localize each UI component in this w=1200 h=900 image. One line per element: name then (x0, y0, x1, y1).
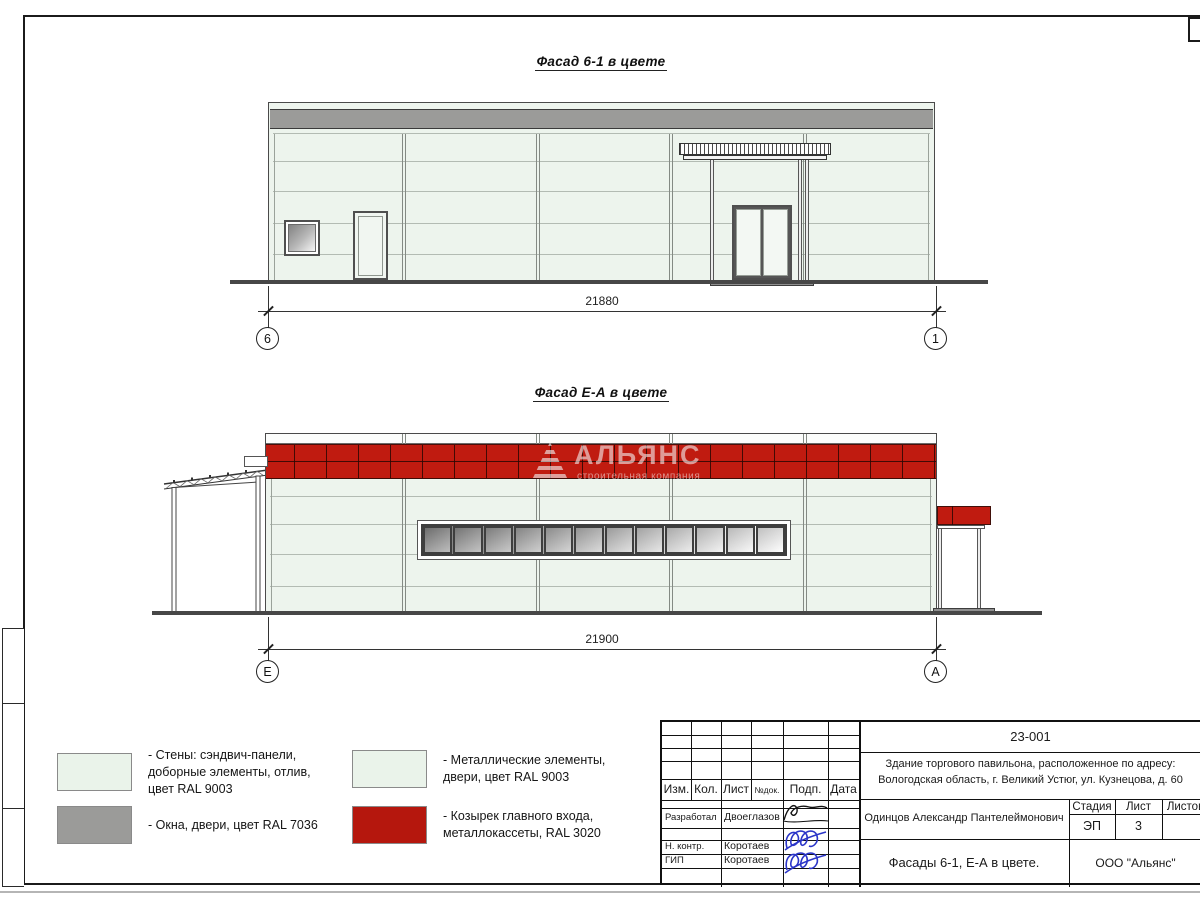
facade2-ribbon-window (417, 520, 791, 560)
signature-blue-stamps (779, 826, 833, 880)
company-name: ООО "Альянс" (1069, 856, 1200, 870)
facade1-window (284, 220, 320, 256)
right-canopy-post (977, 529, 981, 610)
signature-developer (782, 800, 830, 826)
axis-bubble-1: 1 (924, 327, 947, 350)
window-pane (514, 526, 543, 554)
extension-line (268, 617, 269, 661)
frame-corner-box (1188, 17, 1200, 42)
panel-joint (402, 134, 406, 280)
col-data: Дата (828, 782, 859, 796)
panel-joint (803, 479, 807, 612)
col-podp: Подп. (783, 782, 828, 796)
panel-joint (536, 134, 540, 280)
facade2-right-red-fascia (937, 506, 991, 525)
axis-bubble-E: Е (256, 660, 279, 683)
window-pane (695, 526, 724, 554)
col-ndok: №док. (751, 785, 783, 795)
name-gip: Коротаев (724, 854, 769, 866)
facade2-side-canopy (162, 462, 272, 614)
door-leaf (736, 209, 761, 276)
facade1-dimension-value: 21880 (537, 294, 667, 308)
window-pane (453, 526, 482, 554)
dimension-line (258, 649, 946, 650)
window-frame (421, 524, 787, 556)
legend-label-windows: - Окна, двери, цвет RAL 7036 (148, 817, 358, 834)
window-pane (635, 526, 664, 554)
panel-line (273, 133, 930, 134)
client-name: Одинцов Александр Пантелеймонович (859, 812, 1069, 824)
frame-margin-box-3 (2, 808, 24, 887)
extension-line (936, 286, 937, 328)
legend-label-walls: - Стены: сэндвич-панели, доборные элемен… (148, 747, 358, 798)
facade1-parapet-band (270, 109, 933, 129)
stage-label: Стадия (1069, 801, 1115, 813)
sheet-bottom-edge (0, 891, 1200, 893)
panel-joint (803, 434, 807, 444)
frame-margin-box-1 (2, 628, 24, 705)
facade1-entrance-canopy (679, 143, 831, 155)
facade2-roof-edge (266, 434, 936, 444)
facade1-single-door (353, 211, 388, 280)
corner-line (274, 134, 275, 280)
facade2-left-protrusion (244, 456, 268, 467)
door-leaf (358, 216, 383, 276)
sheet-value: 3 (1115, 819, 1162, 833)
panel-joint (402, 479, 406, 612)
panel-line (273, 191, 930, 192)
facade1-building (268, 102, 935, 281)
sheet-label: Лист (1115, 801, 1162, 813)
doc-number: 23-001 (859, 729, 1200, 744)
window-pane (484, 526, 513, 554)
legend-swatch-walls (57, 753, 132, 791)
role-gip: ГИП (665, 855, 684, 866)
corner-line (930, 479, 931, 612)
window-glass (288, 224, 316, 252)
name-developer: Двоеглазов (724, 811, 780, 823)
right-canopy-post (938, 529, 942, 610)
sheets-label: Листов (1162, 801, 1200, 813)
cassette-joint (952, 506, 953, 525)
door-leaf (763, 209, 788, 276)
frame-top (23, 15, 1200, 17)
stage-value: ЭП (1069, 819, 1115, 833)
panel-joint (402, 434, 406, 444)
canopy-post (798, 160, 802, 280)
canopy-post (805, 160, 809, 280)
extension-line (936, 617, 937, 661)
axis-bubble-A: А (924, 660, 947, 683)
role-developer: Разработал (665, 812, 717, 823)
legend-swatch-metal (352, 750, 427, 788)
canopy-post (710, 160, 714, 280)
window-pane (605, 526, 634, 554)
panel-joint (536, 434, 540, 444)
panel-line (270, 496, 932, 497)
project-address-line1: Здание торгового павильона, расположенно… (859, 758, 1200, 770)
window-pane (574, 526, 603, 554)
col-izm: Изм. (662, 782, 691, 796)
title-block: Изм. Кол. Лист №док. Подп. Дата Разработ… (660, 720, 1200, 885)
legend-label-canopy: - Козырек главного входа, металлокассеты… (443, 808, 653, 842)
window-pane (544, 526, 573, 554)
panel-line (270, 586, 932, 587)
col-kol: Кол. (691, 782, 721, 796)
facade2-ground-line (152, 611, 1042, 615)
role-ncontrol: Н. контр. (665, 841, 704, 852)
window-pane (726, 526, 755, 554)
cassette-row-line (266, 461, 936, 462)
facade1-double-door (732, 205, 792, 280)
legend-label-metal: - Металлические элементы, двери, цвет RA… (443, 752, 653, 786)
window-pane (756, 526, 785, 554)
name-ncontrol: Коротаев (724, 840, 769, 852)
panel-joint (669, 434, 673, 444)
corner-line (928, 134, 929, 280)
drawing-title: Фасады 6-1, Е-А в цвете. (859, 855, 1069, 870)
legend-swatch-windows (57, 806, 132, 844)
drawing-sheet: { "facades": { "f1": { "title": "Фасад 6… (0, 0, 1200, 900)
facade2-dimension-value: 21900 (537, 632, 667, 646)
legend-swatch-canopy (352, 806, 427, 844)
facade1-ground-line (230, 280, 988, 284)
project-address-line2: Вологодская область, г. Великий Устюг, у… (859, 774, 1200, 786)
window-pane (665, 526, 694, 554)
axis-bubble-6: 6 (256, 327, 279, 350)
facade1-title: Фасад 6-1 в цвете (441, 54, 761, 69)
corner-line (271, 479, 272, 612)
panel-line (273, 161, 930, 162)
panel-joint (669, 134, 673, 280)
window-pane (423, 526, 452, 554)
facade2-title: Фасад Е-А в цвете (441, 385, 761, 400)
dimension-line (258, 311, 946, 312)
extension-line (268, 286, 269, 328)
frame-margin-box-2 (2, 703, 24, 810)
col-list: Лист (721, 782, 751, 796)
